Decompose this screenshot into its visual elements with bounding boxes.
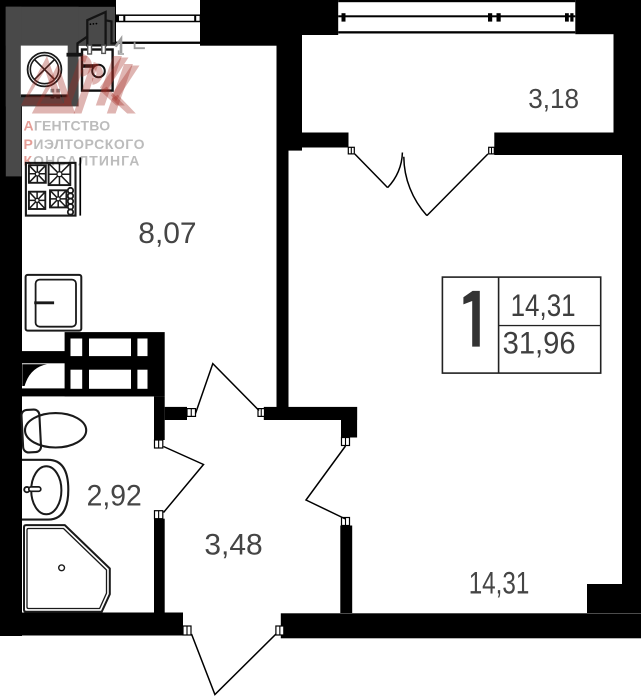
svg-text:31,96: 31,96 — [503, 325, 576, 361]
svg-text:РИЭЛТОРСКОГО: РИЭЛТОРСКОГО — [24, 136, 146, 152]
svg-text:2,92: 2,92 — [87, 481, 142, 513]
svg-text:14,31: 14,31 — [469, 565, 530, 601]
svg-text:8,07: 8,07 — [138, 218, 196, 250]
svg-text:14,31: 14,31 — [511, 287, 576, 323]
svg-text:АГЕНТСТВО: АГЕНТСТВО — [24, 118, 111, 134]
svg-text:3,48: 3,48 — [204, 529, 262, 562]
svg-text:3,18: 3,18 — [528, 83, 579, 114]
svg-text:КОНСАЛТИНГА: КОНСАЛТИНГА — [24, 152, 141, 168]
